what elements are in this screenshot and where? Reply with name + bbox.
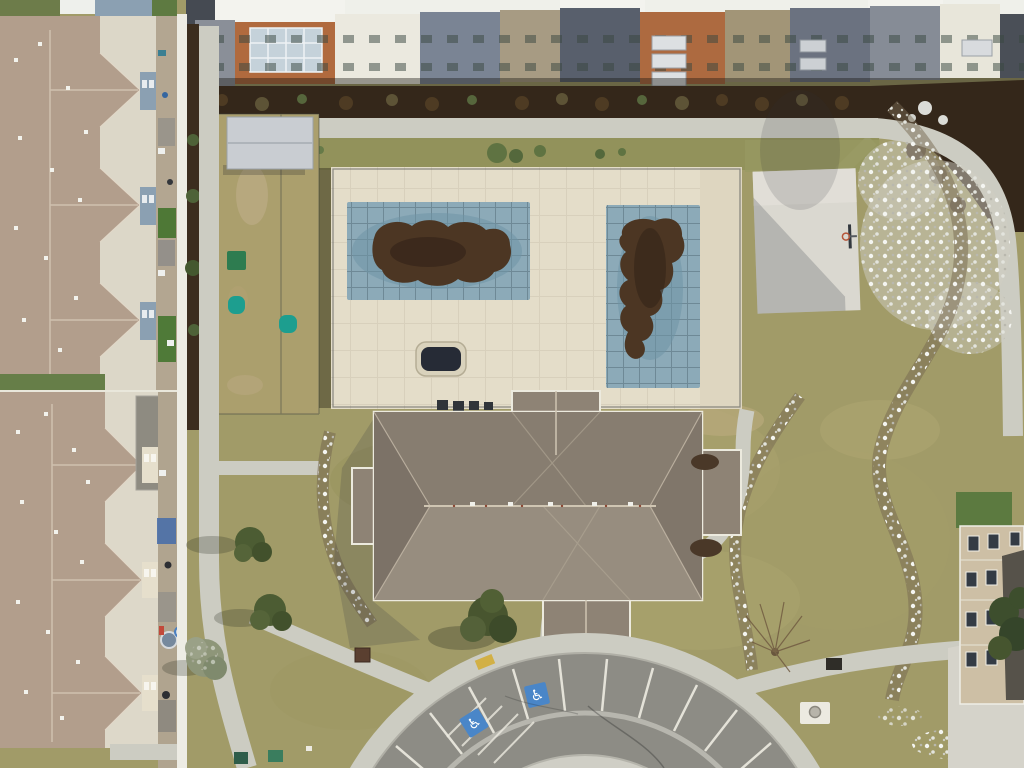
planter-bed (691, 454, 719, 470)
pool-area (319, 167, 742, 411)
townhouse-cluster-top (0, 0, 177, 394)
blue-tarp (157, 518, 176, 544)
townhouse-roof (0, 392, 142, 748)
townhouse-roof (0, 16, 140, 390)
balcony (800, 58, 826, 70)
patio (158, 118, 175, 146)
apartment-row (186, 0, 1024, 90)
red-toy (159, 626, 164, 635)
yard-item (158, 50, 166, 56)
hot-tub (416, 342, 466, 376)
townhouse-wall-top (95, 0, 152, 16)
backyards-top (156, 16, 177, 390)
hedge (188, 324, 200, 336)
ac-unit (167, 340, 174, 346)
scene-canvas: Top-down aerial view of a residential co… (0, 0, 1024, 768)
bin (268, 750, 283, 762)
turf-patch (158, 316, 176, 362)
balcony (652, 36, 686, 50)
patio (158, 700, 176, 732)
planter-bed (690, 539, 722, 557)
snow-patch-bottom (878, 706, 922, 726)
turf-patch (158, 208, 176, 238)
utility-box (355, 648, 370, 662)
grill (162, 691, 170, 699)
ac-unit (158, 270, 165, 276)
second-pool-covered (606, 205, 700, 388)
patio (158, 592, 176, 622)
roof-west-wing (352, 468, 376, 544)
deck-edge-shadow (319, 168, 331, 408)
roof-south-slope (374, 506, 702, 600)
balcony (800, 40, 826, 52)
bin (234, 752, 248, 764)
agility-barrel (279, 315, 297, 333)
privacy-fence (177, 14, 187, 768)
ac-unit (159, 470, 166, 476)
ac-unit (437, 400, 448, 410)
ac-unit (453, 401, 464, 411)
aerial-photo: Top-down aerial view of a residential co… (0, 0, 1024, 768)
balcony (652, 54, 686, 68)
ac-unit (469, 401, 479, 410)
rooftop-lawn (956, 492, 1012, 528)
spa-cover (421, 347, 461, 371)
hedge (186, 189, 200, 203)
tree-shadow (186, 536, 238, 554)
ac-unit (158, 148, 165, 154)
ac-unit (484, 402, 493, 410)
yard-item (162, 92, 168, 98)
utility-pad (800, 702, 830, 724)
townhouse-cluster-bottom (0, 392, 185, 768)
sidewalk-bottom-left (110, 744, 180, 760)
roof-corner-white (60, 0, 95, 14)
leaf-debris-dark (390, 237, 466, 267)
patio (158, 240, 175, 266)
hedge (187, 134, 199, 146)
utility-box (826, 658, 842, 670)
tree-shadow-court (760, 90, 840, 210)
sidewalk-branch (219, 461, 319, 475)
balcony (962, 40, 992, 56)
main-pool-covered (347, 202, 530, 300)
grill (167, 179, 173, 185)
deck-right-strip (700, 167, 742, 409)
roof-north-slope (374, 412, 702, 506)
right-building (948, 492, 1024, 768)
dirt-patch (227, 375, 263, 395)
small-white-object (306, 746, 312, 751)
leaf-debris-dark (634, 228, 666, 308)
agility-barrel (228, 296, 245, 314)
agility-table (227, 251, 246, 270)
grill (165, 562, 172, 569)
lawn-corner (0, 0, 60, 16)
hedge (185, 260, 201, 276)
fence-mulch-strip (187, 24, 199, 430)
apartment-windows (195, 26, 1024, 80)
